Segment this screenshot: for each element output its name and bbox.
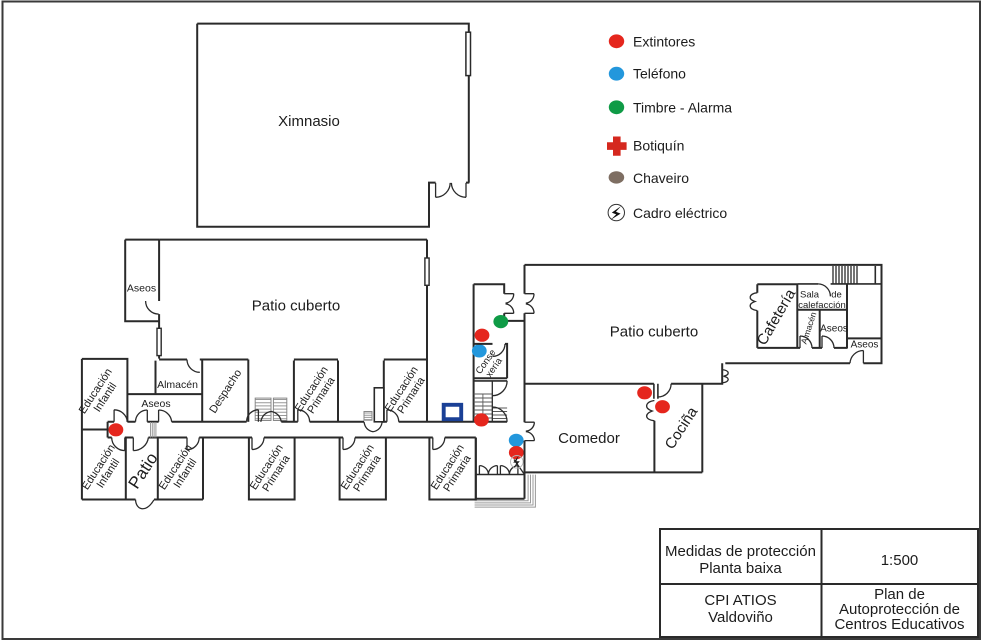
svg-text:Chaveiro: Chaveiro	[633, 170, 689, 186]
svg-text:Medidas de protección: Medidas de protección	[665, 543, 816, 560]
svg-text:Planta baixa: Planta baixa	[699, 560, 782, 577]
svg-text:Almacén: Almacén	[157, 379, 198, 391]
svg-text:Aseos: Aseos	[820, 324, 848, 335]
svg-text:Patio cuberto: Patio cuberto	[252, 298, 340, 315]
svg-text:Aseos: Aseos	[141, 398, 170, 410]
svg-text:de: de	[831, 290, 842, 301]
svg-text:Timbre - Alarma: Timbre - Alarma	[633, 99, 732, 115]
svg-text:Aseos: Aseos	[851, 340, 879, 351]
svg-text:Valdoviño: Valdoviño	[708, 609, 773, 626]
svg-text:Ximnasio: Ximnasio	[278, 113, 340, 130]
svg-text:Botiquín: Botiquín	[633, 138, 684, 154]
svg-text:Patio cuberto: Patio cuberto	[610, 324, 698, 341]
svg-text:1:500: 1:500	[881, 552, 919, 569]
svg-text:Teléfono: Teléfono	[633, 66, 686, 82]
svg-text:Aseos: Aseos	[127, 283, 156, 295]
svg-text:Cadro eléctrico: Cadro eléctrico	[633, 205, 727, 221]
svg-text:Centros Educativos: Centros Educativos	[834, 616, 964, 633]
svg-text:Comedor: Comedor	[558, 430, 620, 447]
svg-text:CPI ATIOS: CPI ATIOS	[704, 592, 776, 609]
svg-text:calefacción: calefacción	[798, 300, 846, 311]
svg-text:Sala: Sala	[800, 290, 820, 301]
svg-text:Extintores: Extintores	[633, 33, 695, 49]
